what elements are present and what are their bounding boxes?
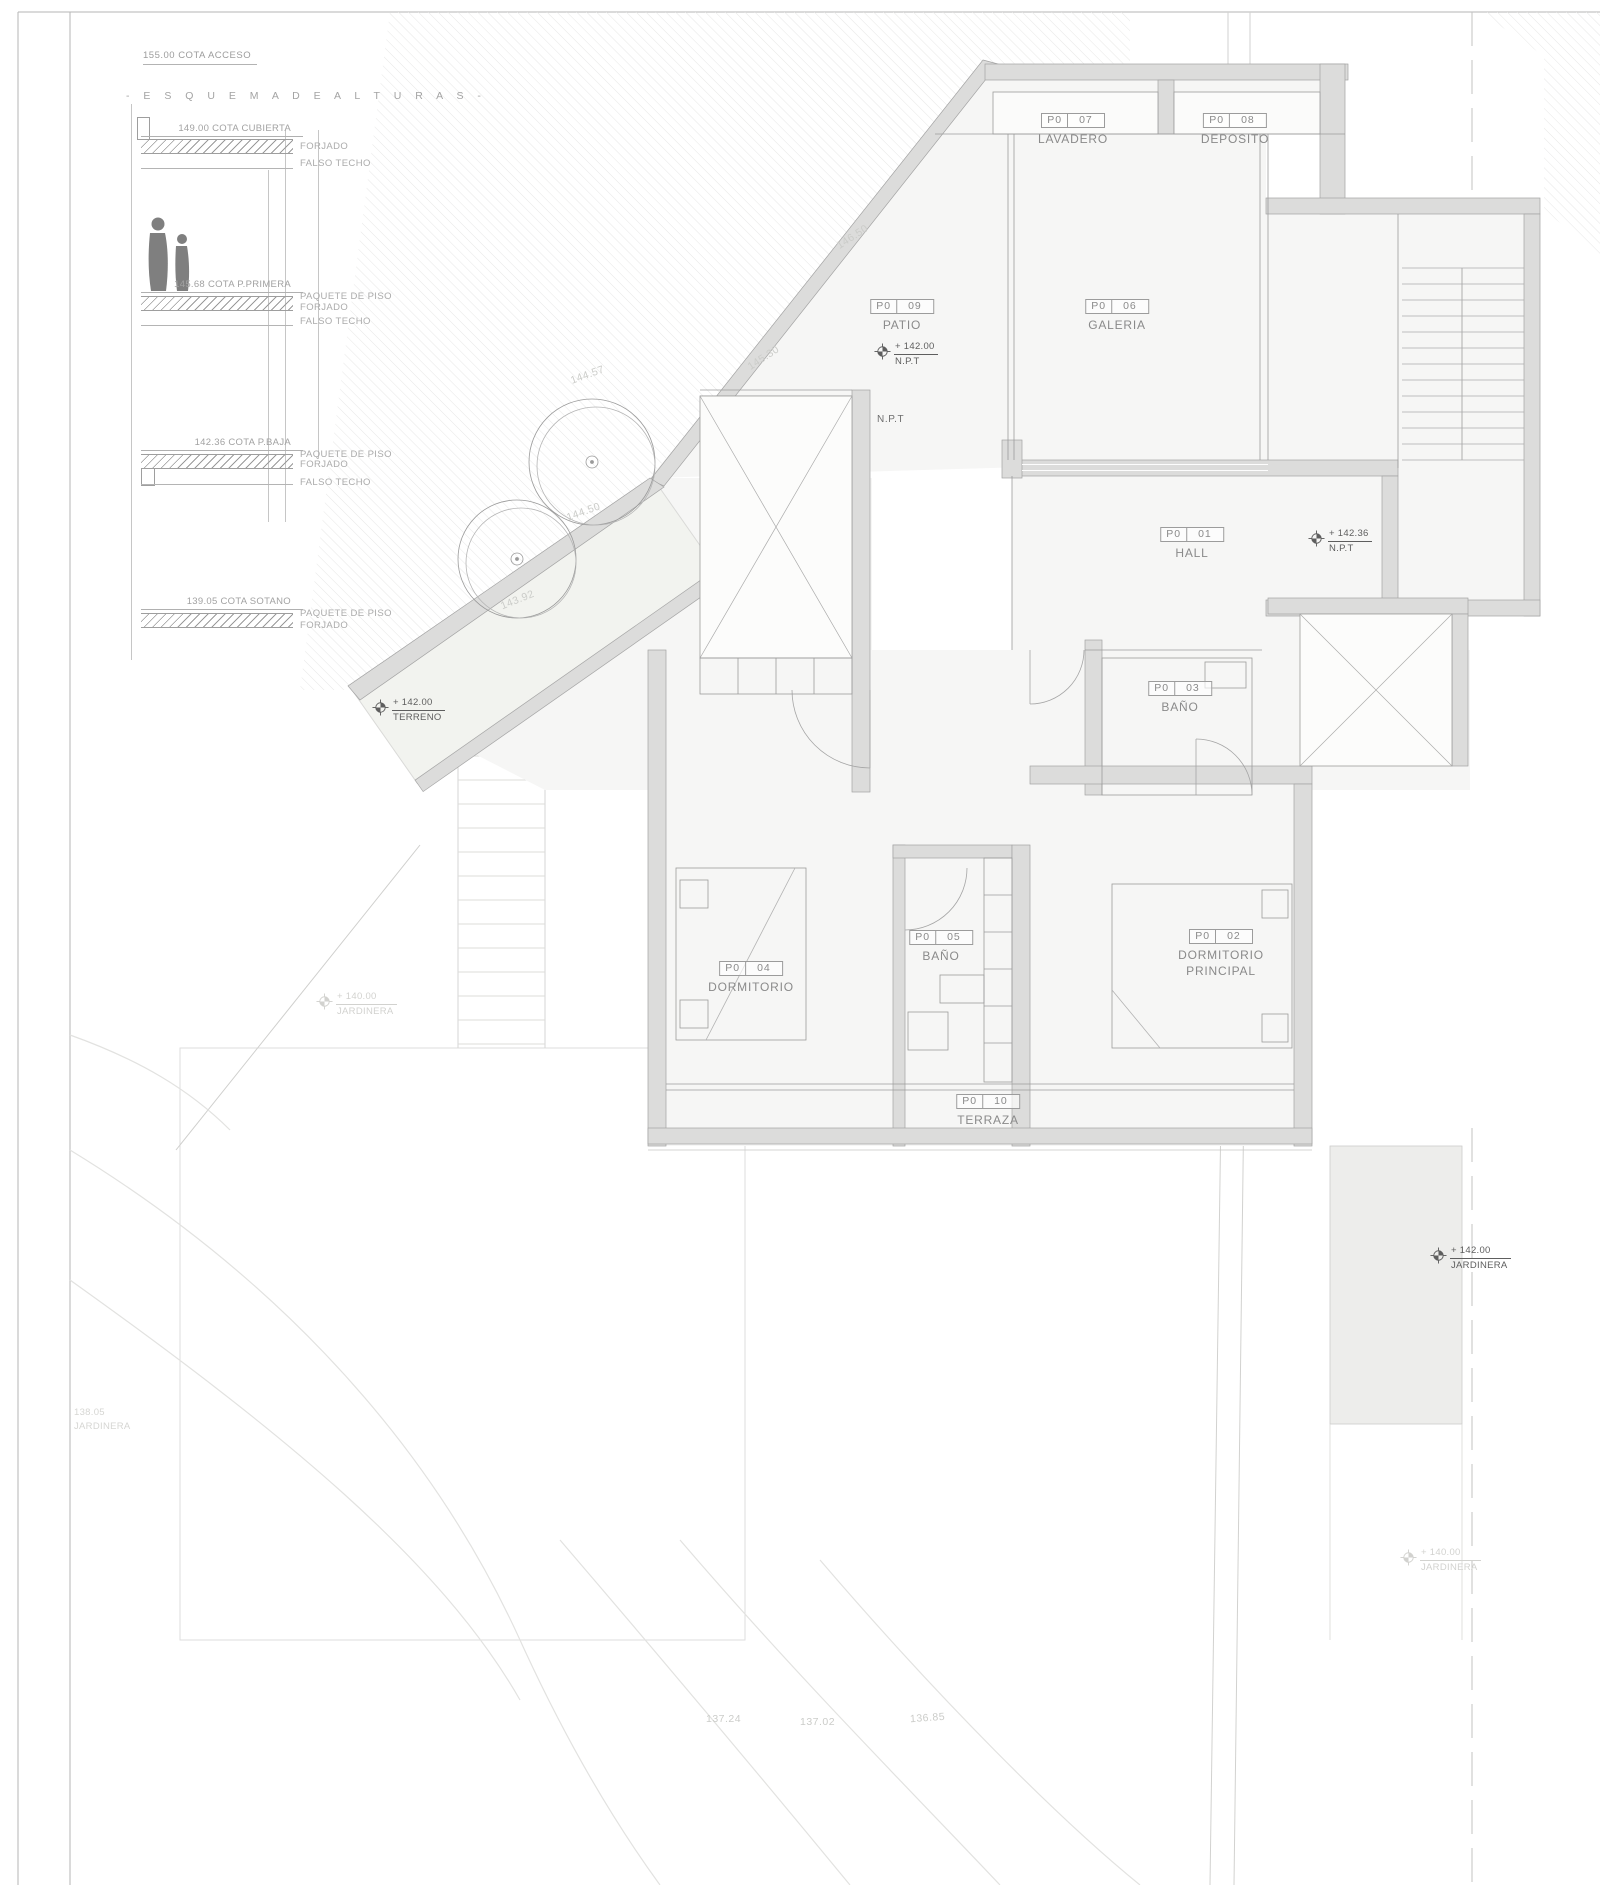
falso-techo-line — [141, 484, 293, 485]
slab-label: FALSO TECHO — [300, 316, 371, 327]
falso-techo-line — [141, 325, 293, 326]
level-marker-patio: + 142.00N.P.T — [874, 342, 938, 366]
schema-heading: - E S Q U E M A D E A L T U R A S - — [126, 90, 486, 102]
room-tag-bano-05: P005 BAÑO — [909, 927, 973, 964]
slab-hatch — [141, 139, 293, 154]
room-tag-bano-03: P003 BAÑO — [1148, 678, 1212, 715]
level-marker-icon — [1430, 1247, 1447, 1264]
slab-label: PAQUETE DE PISO — [300, 291, 392, 302]
npt-label: N.P.T — [877, 414, 904, 425]
level-marker-jardinera-right: + 142.00JARDINERA — [1430, 1246, 1511, 1270]
slab-hatch — [141, 454, 293, 469]
room-tag-deposito: P008 DEPOSITO — [1201, 110, 1269, 147]
level-marker-icon — [316, 993, 333, 1010]
bottom-level-label: 136.85 — [910, 1711, 946, 1725]
dim-line — [268, 170, 269, 522]
level-marker-icon — [372, 699, 389, 716]
dim-line — [131, 104, 132, 660]
slab-label: FORJADO — [300, 302, 348, 313]
level-marker-icon — [874, 343, 891, 360]
slab-label: FORJADO — [300, 141, 348, 152]
cota-acceso-label: 155.00 COTA ACCESO — [143, 50, 257, 65]
bottom-level-label: 137.24 — [706, 1713, 741, 1725]
level-marker-jardinera-left: + 140.00JARDINERA — [316, 992, 397, 1016]
falso-techo-line — [141, 168, 293, 169]
room-tag-galeria: P006 GALERIA — [1085, 296, 1149, 333]
slab-label: FALSO TECHO — [300, 158, 371, 169]
left-jardinera-note: 138.05 JARDINERA — [74, 1406, 131, 1435]
slab-hatch — [141, 296, 293, 311]
cota-cubierta: 149.00 COTA CUBIERTA — [141, 123, 303, 137]
level-marker-terreno: + 142.00TERRENO — [372, 698, 445, 722]
level-marker-icon — [1308, 530, 1325, 547]
room-tag-dormitorio: P004 DORMITORIO — [708, 958, 794, 995]
drawing-sheet: 155.00 COTA ACCESO - E S Q U E M A D E A… — [0, 0, 1600, 1885]
slab-label: FORJADO — [300, 620, 348, 631]
cota-baja: 142.36 COTA P.BAJA — [141, 437, 303, 451]
room-tag-dormitorio-principal: P002 DORMITORIO PRINCIPAL — [1165, 926, 1277, 979]
room-tag-terraza: P010 TERRAZA — [956, 1091, 1020, 1128]
level-marker-icon — [1400, 1549, 1417, 1566]
slab-hatch — [141, 613, 293, 628]
level-marker-jardinera-bottom: + 140.00JARDINERA — [1400, 1548, 1481, 1572]
room-tag-lavadero: P007 LAVADERO — [1038, 110, 1108, 147]
bottom-level-label: 137.02 — [800, 1716, 835, 1728]
slab-label: FALSO TECHO — [300, 477, 371, 488]
slab-label: FORJADO — [300, 459, 348, 470]
cota-primera: 145.68 COTA P.PRIMERA — [141, 279, 303, 293]
room-tag-patio: P009 PATIO — [870, 296, 934, 333]
cota-sotano: 139.05 COTA SOTANO — [141, 596, 303, 610]
slab-label: PAQUETE DE PISO — [300, 608, 392, 619]
level-marker-hall: + 142.36N.P.T — [1308, 529, 1372, 553]
room-tag-hall: P001 HALL — [1160, 524, 1224, 561]
